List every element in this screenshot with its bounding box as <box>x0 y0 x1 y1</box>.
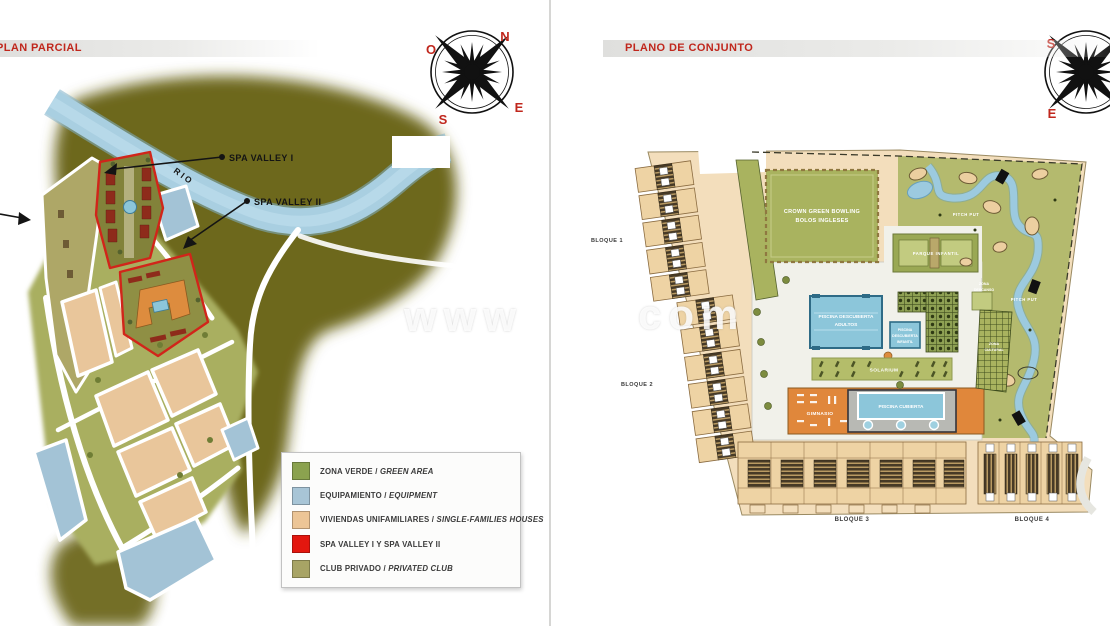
bloque-4 <box>978 442 1082 504</box>
kids-pool-label-1: PISCINA <box>898 328 913 332</box>
panel-divider <box>549 0 551 626</box>
legend-label: SPA VALLEY I Y SPA VALLEY II <box>320 540 440 549</box>
legend: ZONA VERDE / GREEN AREA EQUIPAMIENTO / E… <box>281 452 521 588</box>
rest-area <box>972 292 992 310</box>
legend-separator: / <box>429 515 436 524</box>
adult-pool-label-2: ADULTOS <box>835 322 859 328</box>
legend-separator: / <box>373 467 380 476</box>
legend-row-club-privado: CLUB PRIVADO / PRIVATED CLUB <box>282 560 520 578</box>
legend-label-en: GREEN AREA <box>380 467 434 476</box>
left-panel-title: PLAN PARCIAL <box>0 42 82 54</box>
bowling-green: CROWN GREEN BOWLING BOLOS INGLESES <box>766 170 878 262</box>
cultural-label-1: ZONA <box>989 342 1000 346</box>
right-panel-title-bar: PLANO DE CONJUNTO <box>603 40 1110 57</box>
legend-label: ZONA VERDE <box>320 467 373 476</box>
bloque-2-label: BLOQUE 2 <box>621 382 653 388</box>
brochure-page: RIO SPA VALLEY I SPA VALLEY II N O S E <box>0 0 1110 626</box>
legend-label: EQUIPAMIENTO <box>320 491 382 500</box>
callout-left-edge <box>0 212 31 225</box>
legend-swatch-equipamiento <box>292 487 310 505</box>
compass-left: N O S E <box>426 29 524 127</box>
legend-label-en: EQUIPMENT <box>389 491 437 500</box>
adult-pool: PISCINA DESCUBIERTA ADULTOS <box>810 294 882 350</box>
legend-label: VIVIENDAS UNIFAMILIARES <box>320 515 429 524</box>
compass-o: O <box>426 42 436 57</box>
bloque-3-label: BLOQUE 3 <box>835 517 870 523</box>
legend-row-spa-valley: SPA VALLEY I Y SPA VALLEY II <box>282 535 520 553</box>
compass-n: N <box>500 29 509 44</box>
legend-label-en: PRIVATED CLUB <box>388 564 453 573</box>
legend-swatch-club-privado <box>292 560 310 578</box>
plans-artwork: RIO SPA VALLEY I SPA VALLEY II N O S E <box>0 0 1110 626</box>
cultural-label-2: CULTURAL <box>984 348 1004 352</box>
bloque-1-label: BLOQUE 1 <box>591 238 623 244</box>
legend-row-zona-verde: ZONA VERDE / GREEN AREA <box>282 462 520 480</box>
left-panel-title-bar: PLAN PARCIAL <box>0 40 320 57</box>
spa-valley-1-label: SPA VALLEY I <box>229 153 293 163</box>
legend-swatch-viviendas <box>292 511 310 529</box>
spa-valley-1-parcel <box>96 152 163 268</box>
right-panel-title: PLANO DE CONJUNTO <box>625 42 753 54</box>
pitch-put-label-b: PITCH PUT <box>1011 297 1038 302</box>
solarium-label: SOLARIUM <box>870 368 899 374</box>
kids-pool-label-3: INFANTIL <box>897 340 914 344</box>
bowling-label-2: BOLOS INGLESES <box>795 218 848 224</box>
legend-swatch-zona-verde <box>292 462 310 480</box>
bloque-3 <box>738 442 966 513</box>
adult-pool-label-1: PISCINA DESCUBIERTA <box>819 314 874 320</box>
white-patch <box>392 136 450 168</box>
playground-label: PARQUE INFANTIL <box>913 251 960 256</box>
legend-row-equipamiento: EQUIPAMIENTO / EQUIPMENT <box>282 487 520 505</box>
plano-de-conjunto-map: CROWN GREEN BOWLING BOLOS INGLESES PARQU… <box>591 31 1110 523</box>
legend-separator: / <box>382 491 389 500</box>
legend-swatch-spa-valley <box>292 535 310 553</box>
gym-label: GIMNASIO <box>807 411 834 417</box>
kids-pool-label-2: DESCUBIERTA <box>892 334 918 338</box>
bloque-4-label: BLOQUE 4 <box>1015 517 1050 523</box>
compass-s: S <box>439 112 448 127</box>
compass-e-right: E <box>1048 106 1057 121</box>
spa-valley-2-label: SPA VALLEY II <box>254 197 321 207</box>
solarium: SOLARIUM <box>812 358 952 380</box>
compass-e: E <box>515 100 524 115</box>
legend-label: CLUB PRIVADO <box>320 564 381 573</box>
club-building: GIMNASIO PISCINA CUBIERTA <box>788 388 984 434</box>
bowling-label-1: CROWN GREEN BOWLING <box>784 209 860 215</box>
pitch-put-label-a: PITCH PUT <box>953 212 980 217</box>
legend-row-viviendas: VIVIENDAS UNIFAMILIARES / SINGLE-FAMILIE… <box>282 511 520 529</box>
legend-label-en: SINGLE-FAMILIES HOUSES <box>437 515 544 524</box>
rest-label-2: DESCANSO <box>974 288 995 292</box>
indoor-pool-label: PISCINA CUBIERTA <box>878 404 924 410</box>
rest-label-1: ZONA <box>979 282 990 286</box>
indoor-pool: PISCINA CUBIERTA <box>848 390 956 432</box>
